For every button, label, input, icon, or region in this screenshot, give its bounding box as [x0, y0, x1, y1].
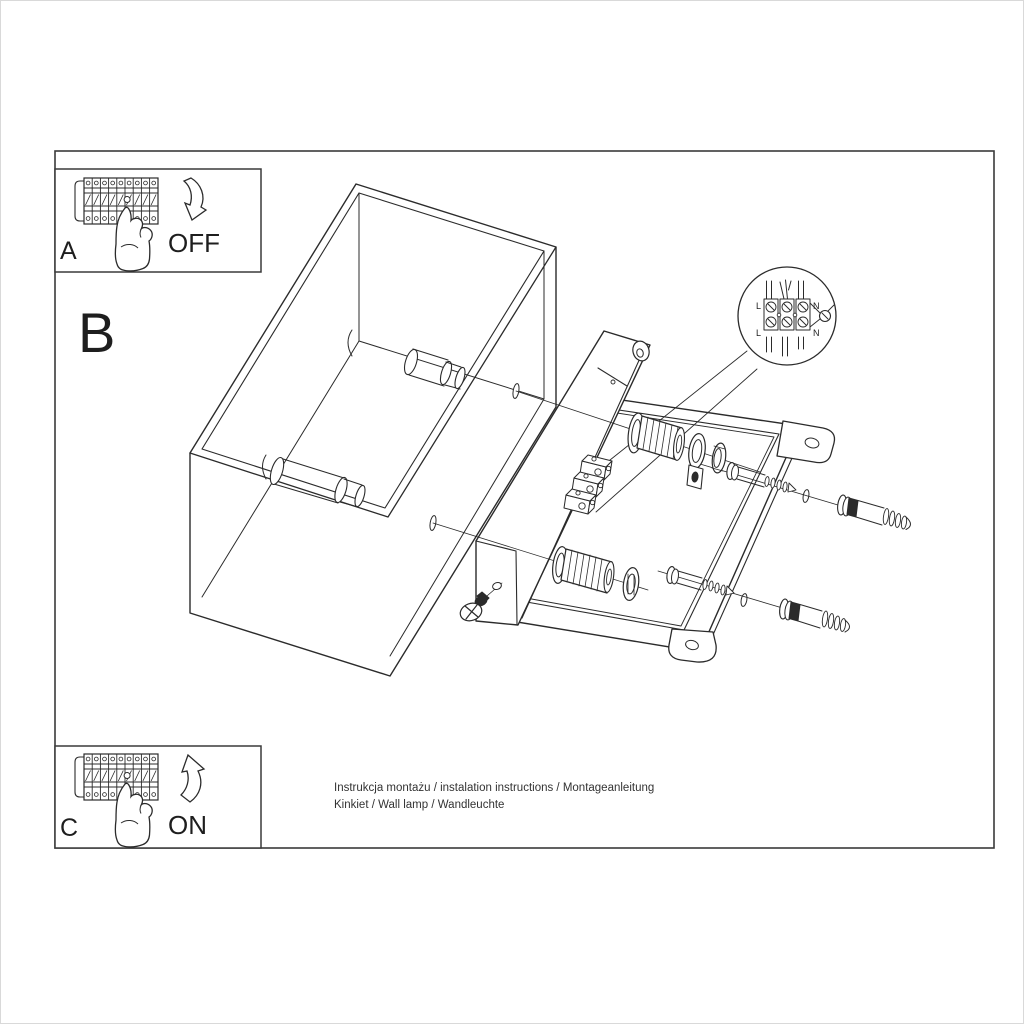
power-on-label: ON	[168, 810, 207, 840]
footer-line-1: Instrukcja montażu / instalation instruc…	[334, 782, 654, 794]
terminal-label-l-bottom: L	[756, 328, 761, 338]
step-a-label: A	[60, 237, 77, 265]
power-off-label: OFF	[168, 228, 220, 258]
footer-line-2: Kinkiet / Wall lamp / Wandleuchte	[334, 799, 504, 811]
terminal-label-l-top: L	[756, 301, 761, 311]
terminal-label-n-bottom: N	[813, 328, 820, 338]
wiring-detail-circle: L N L N	[738, 267, 836, 365]
circuit-breaker-icon	[75, 178, 158, 224]
instruction-drawing: A OFF C ON B	[0, 0, 1024, 1024]
terminal-label-n-top: N	[813, 301, 820, 311]
step-c-label: C	[60, 814, 78, 842]
plate-screw-hole	[611, 380, 615, 384]
instruction-sheet: A OFF C ON B	[0, 0, 1024, 1024]
step-b-label: B	[78, 301, 115, 364]
step-a-panel: A OFF	[55, 169, 261, 272]
step-c-panel: C ON	[55, 746, 261, 848]
circuit-breaker-icon	[75, 754, 158, 800]
